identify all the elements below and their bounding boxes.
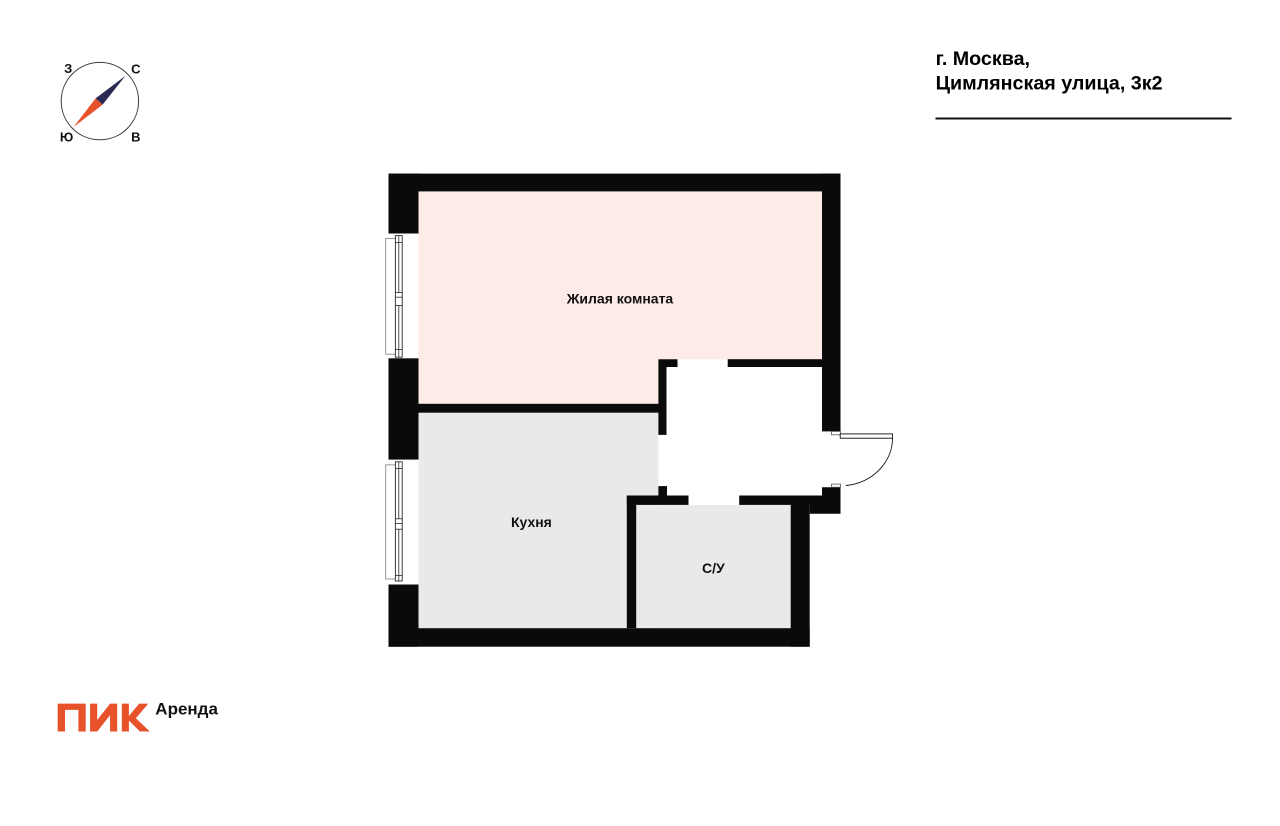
svg-text:З: З <box>64 61 72 76</box>
svg-text:Аренда: Аренда <box>155 699 218 718</box>
svg-text:Кухня: Кухня <box>511 514 552 530</box>
svg-text:Жилая комната: Жилая комната <box>566 291 674 307</box>
svg-text:С/У: С/У <box>702 560 725 576</box>
svg-text:Ю: Ю <box>60 130 73 145</box>
svg-text:В: В <box>131 130 140 145</box>
svg-text:С: С <box>131 62 141 77</box>
svg-text:Цимлянская улица, 3к2: Цимлянская улица, 3к2 <box>936 73 1163 95</box>
svg-text:г. Москва,: г. Москва, <box>936 48 1030 70</box>
